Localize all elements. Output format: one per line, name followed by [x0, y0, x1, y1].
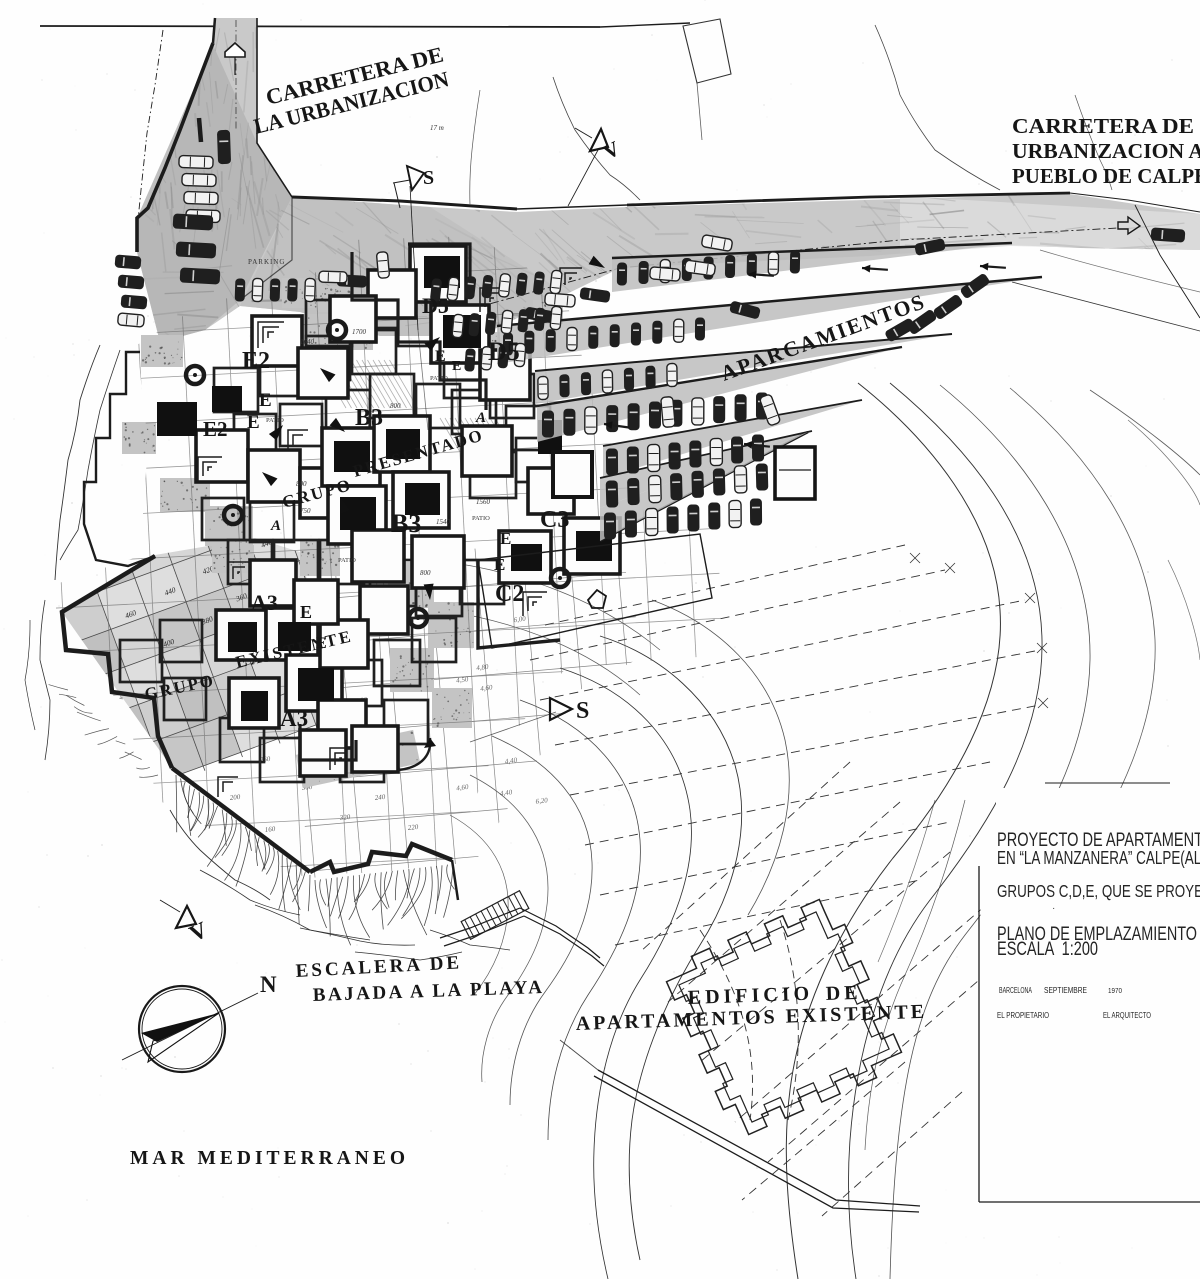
- svg-text:PUEBLO DE CALPE: PUEBLO DE CALPE: [1012, 164, 1200, 188]
- svg-text:320: 320: [338, 813, 351, 822]
- svg-text:E: E: [300, 602, 312, 622]
- svg-text:EL PROPIETARIO: EL PROPIETARIO: [997, 1011, 1049, 1020]
- svg-text:PATIO: PATIO: [266, 417, 284, 424]
- svg-text:N: N: [260, 972, 277, 997]
- svg-text:GRUPOS C,D,E, QUE SE PROYE: GRUPOS C,D,E, QUE SE PROYE: [997, 881, 1200, 901]
- svg-text:800: 800: [296, 480, 307, 488]
- svg-text:B3: B3: [355, 405, 383, 431]
- svg-text:A: A: [475, 410, 486, 426]
- svg-text:1560: 1560: [476, 498, 491, 506]
- svg-text:BARCELONA: BARCELONA: [999, 986, 1032, 995]
- svg-text:E: E: [247, 412, 260, 433]
- svg-text:E: E: [316, 635, 327, 652]
- svg-text:C3: C3: [540, 507, 569, 533]
- svg-text:EL ARQUITECTO: EL ARQUITECTO: [1103, 1011, 1151, 1020]
- svg-text:E: E: [500, 529, 511, 548]
- svg-text:E: E: [259, 390, 272, 411]
- svg-text:200: 200: [229, 793, 241, 802]
- svg-text:160: 160: [264, 825, 276, 834]
- svg-text:800: 800: [390, 402, 401, 410]
- svg-text:·: ·: [1052, 903, 1055, 914]
- svg-text:1640: 1640: [300, 338, 315, 346]
- svg-text:PATIO: PATIO: [472, 515, 490, 522]
- svg-text:E: E: [435, 348, 446, 365]
- svg-text:17 m: 17 m: [430, 124, 444, 132]
- svg-text:PATIO: PATIO: [430, 375, 448, 382]
- svg-text:750: 750: [300, 507, 311, 515]
- svg-text:A: A: [270, 518, 281, 534]
- svg-text:E2: E2: [242, 348, 270, 374]
- svg-text:A3: A3: [280, 706, 308, 731]
- svg-text:A3: A3: [251, 590, 278, 615]
- svg-text:PARKING: PARKING: [248, 258, 285, 266]
- svg-text:URBANIZACION A: URBANIZACION A: [1012, 139, 1200, 163]
- svg-text:B3: B3: [391, 509, 421, 538]
- svg-text:CARRETERA DE: CARRETERA DE: [1012, 114, 1194, 138]
- svg-text:C2: C2: [495, 581, 524, 607]
- svg-text:SEPTIEMBRE: SEPTIEMBRE: [1044, 986, 1087, 995]
- svg-text:S: S: [576, 698, 589, 724]
- svg-text:240: 240: [374, 793, 386, 802]
- svg-text:E: E: [452, 359, 461, 374]
- svg-text:EN “LA MANZANERA” CALPE(ALI: EN “LA MANZANERA” CALPE(ALI: [997, 848, 1200, 868]
- svg-text:ESCALA 1:200: ESCALA 1:200: [997, 939, 1098, 960]
- svg-text:DE: DE: [825, 982, 862, 1005]
- svg-text:D5: D5: [422, 293, 449, 318]
- svg-text:D5: D5: [488, 337, 520, 366]
- svg-text:PATIO: PATIO: [338, 557, 356, 564]
- svg-text:E: E: [494, 555, 505, 574]
- svg-text:220: 220: [407, 823, 419, 832]
- svg-text:1970: 1970: [1108, 986, 1122, 995]
- svg-text:1540: 1540: [436, 518, 451, 526]
- svg-text:1700: 1700: [352, 328, 367, 336]
- svg-text:MAR MEDITERRANEO: MAR MEDITERRANEO: [130, 1148, 409, 1169]
- svg-text:S: S: [423, 167, 434, 189]
- svg-text:800: 800: [420, 569, 431, 577]
- svg-text:E2: E2: [203, 417, 228, 441]
